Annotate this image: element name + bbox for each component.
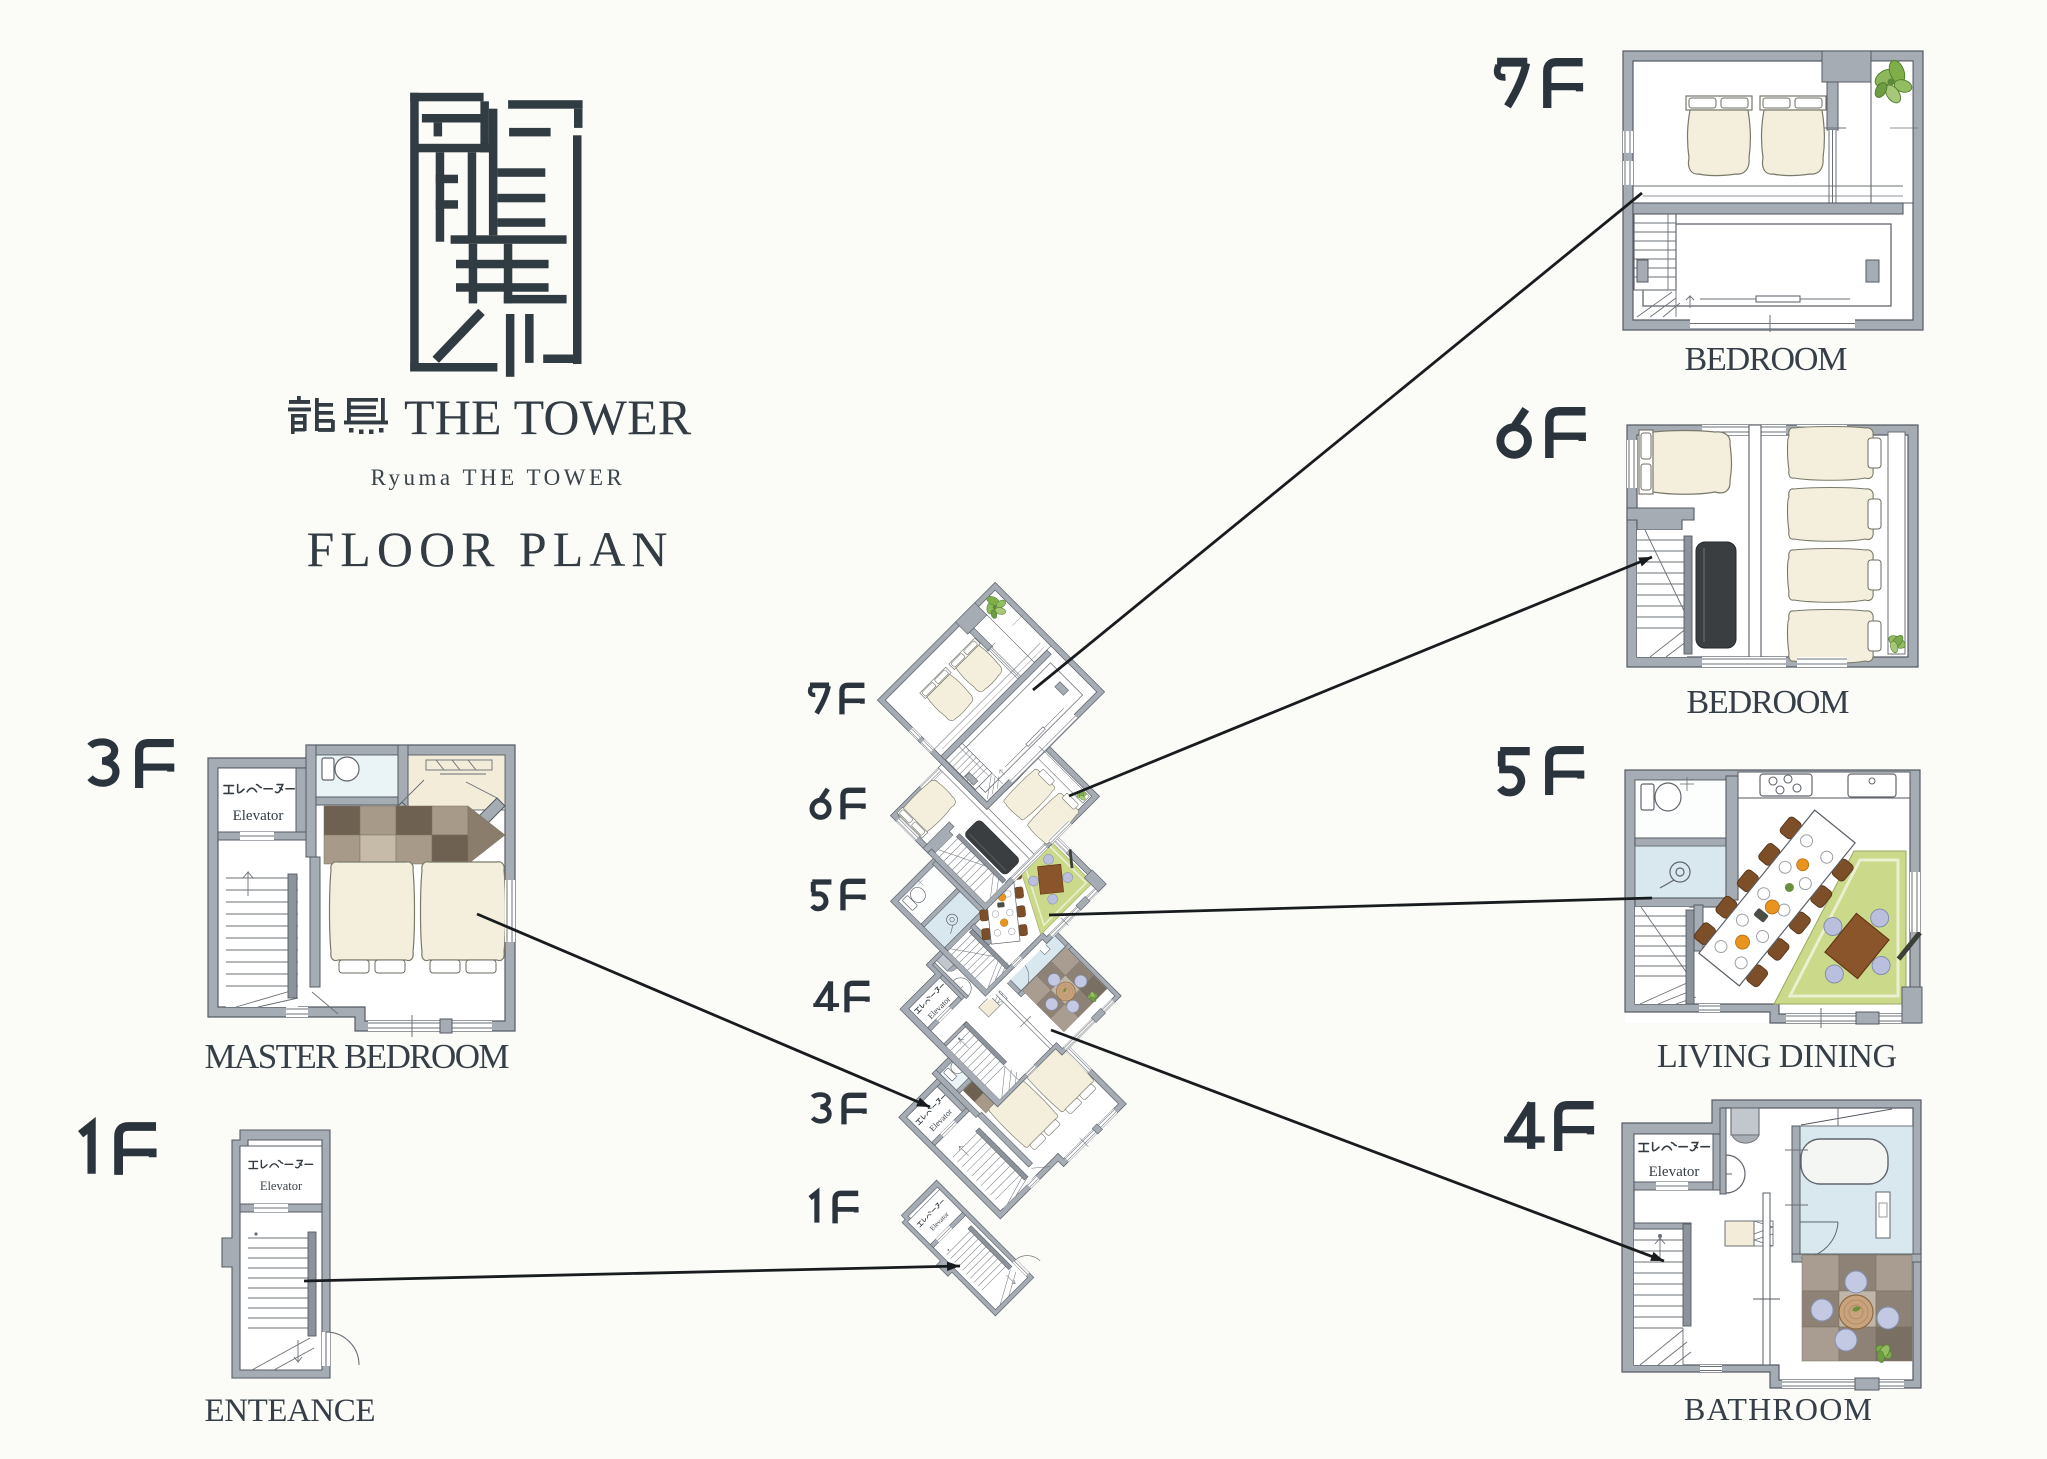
svg-text:ENTEANCE: ENTEANCE: [205, 1393, 376, 1429]
svg-text:BEDROOM: BEDROOM: [1687, 684, 1850, 721]
svg-text:Elevator: Elevator: [260, 1179, 303, 1193]
svg-text:BATHROOM: BATHROOM: [1684, 1391, 1872, 1427]
svg-text:Elevator: Elevator: [233, 808, 284, 824]
svg-text:Ryuma THE TOWER: Ryuma THE TOWER: [371, 465, 626, 490]
svg-text:MASTER BEDROOM: MASTER BEDROOM: [205, 1037, 510, 1076]
svg-text:Elevator: Elevator: [1649, 1164, 1700, 1180]
svg-text:BEDROOM: BEDROOM: [1685, 341, 1848, 378]
svg-text:FLOOR PLAN: FLOOR PLAN: [307, 521, 674, 577]
svg-text:THE TOWER: THE TOWER: [404, 389, 692, 445]
svg-text:LIVING DINING: LIVING DINING: [1657, 1038, 1897, 1075]
